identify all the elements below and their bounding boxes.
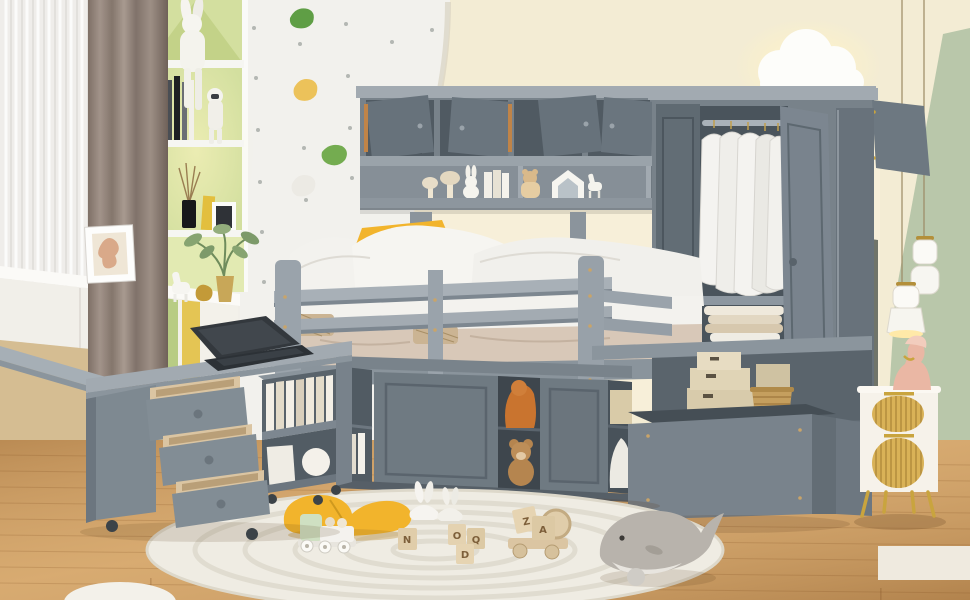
cabinet-door-open-1 xyxy=(366,95,434,159)
cart-side xyxy=(336,362,352,486)
wardrobe-top-door-open xyxy=(872,100,930,176)
truck-wheel-2 xyxy=(545,545,559,559)
truck-letter-front: A xyxy=(539,525,547,536)
desk-shadow xyxy=(80,522,340,542)
beige-box-inside xyxy=(610,390,632,424)
bridge-open-doors xyxy=(364,95,654,159)
nightstand-shadow xyxy=(854,514,946,530)
cabinet-gap xyxy=(498,376,540,492)
nightstand-handle-2 xyxy=(884,434,914,438)
wardrobe-cornice xyxy=(648,88,878,100)
nightstand-door-upper xyxy=(872,396,924,432)
cabinet-door-open-3 xyxy=(538,95,602,157)
block-letter-single: N xyxy=(403,535,411,546)
gold-vase xyxy=(216,276,234,302)
hanging-shirts xyxy=(699,120,788,296)
truck-wheel-1 xyxy=(513,544,527,558)
scene-canvas: N O Q D Z A xyxy=(0,0,970,600)
block-letter-c: D xyxy=(461,550,469,561)
block-letter-a: O xyxy=(453,531,462,542)
sliding-door-2 xyxy=(540,378,608,494)
bear-plush xyxy=(521,169,540,198)
cabinet-door-open-4 xyxy=(601,97,654,157)
cabinet-door-open-2 xyxy=(448,97,512,158)
teddy-bear xyxy=(508,439,534,486)
art-print xyxy=(85,225,136,283)
wardrobe-shelf-1 xyxy=(700,296,788,305)
whale-eye xyxy=(619,535,624,540)
bookshelf-cart xyxy=(258,362,352,504)
brown-curtain xyxy=(88,0,168,415)
train-wheels xyxy=(301,540,350,553)
cart-caster-2 xyxy=(331,485,341,495)
whale-tail-pouf xyxy=(627,568,645,586)
folded-clothes xyxy=(704,306,784,342)
step-side xyxy=(812,414,836,514)
peg-figure-2 xyxy=(337,518,347,528)
nightstand-handle-1 xyxy=(884,392,914,396)
kids-room-photo: N O Q D Z A xyxy=(0,0,970,600)
wardrobe-door-knob xyxy=(789,258,797,266)
peg-figure-1 xyxy=(325,517,335,527)
nightstand-door-lower xyxy=(872,438,924,488)
sliding-door-1 xyxy=(374,372,498,490)
shelf-books-white xyxy=(484,170,509,198)
sage-baseboard xyxy=(878,546,970,580)
storage-box-right xyxy=(756,364,790,390)
